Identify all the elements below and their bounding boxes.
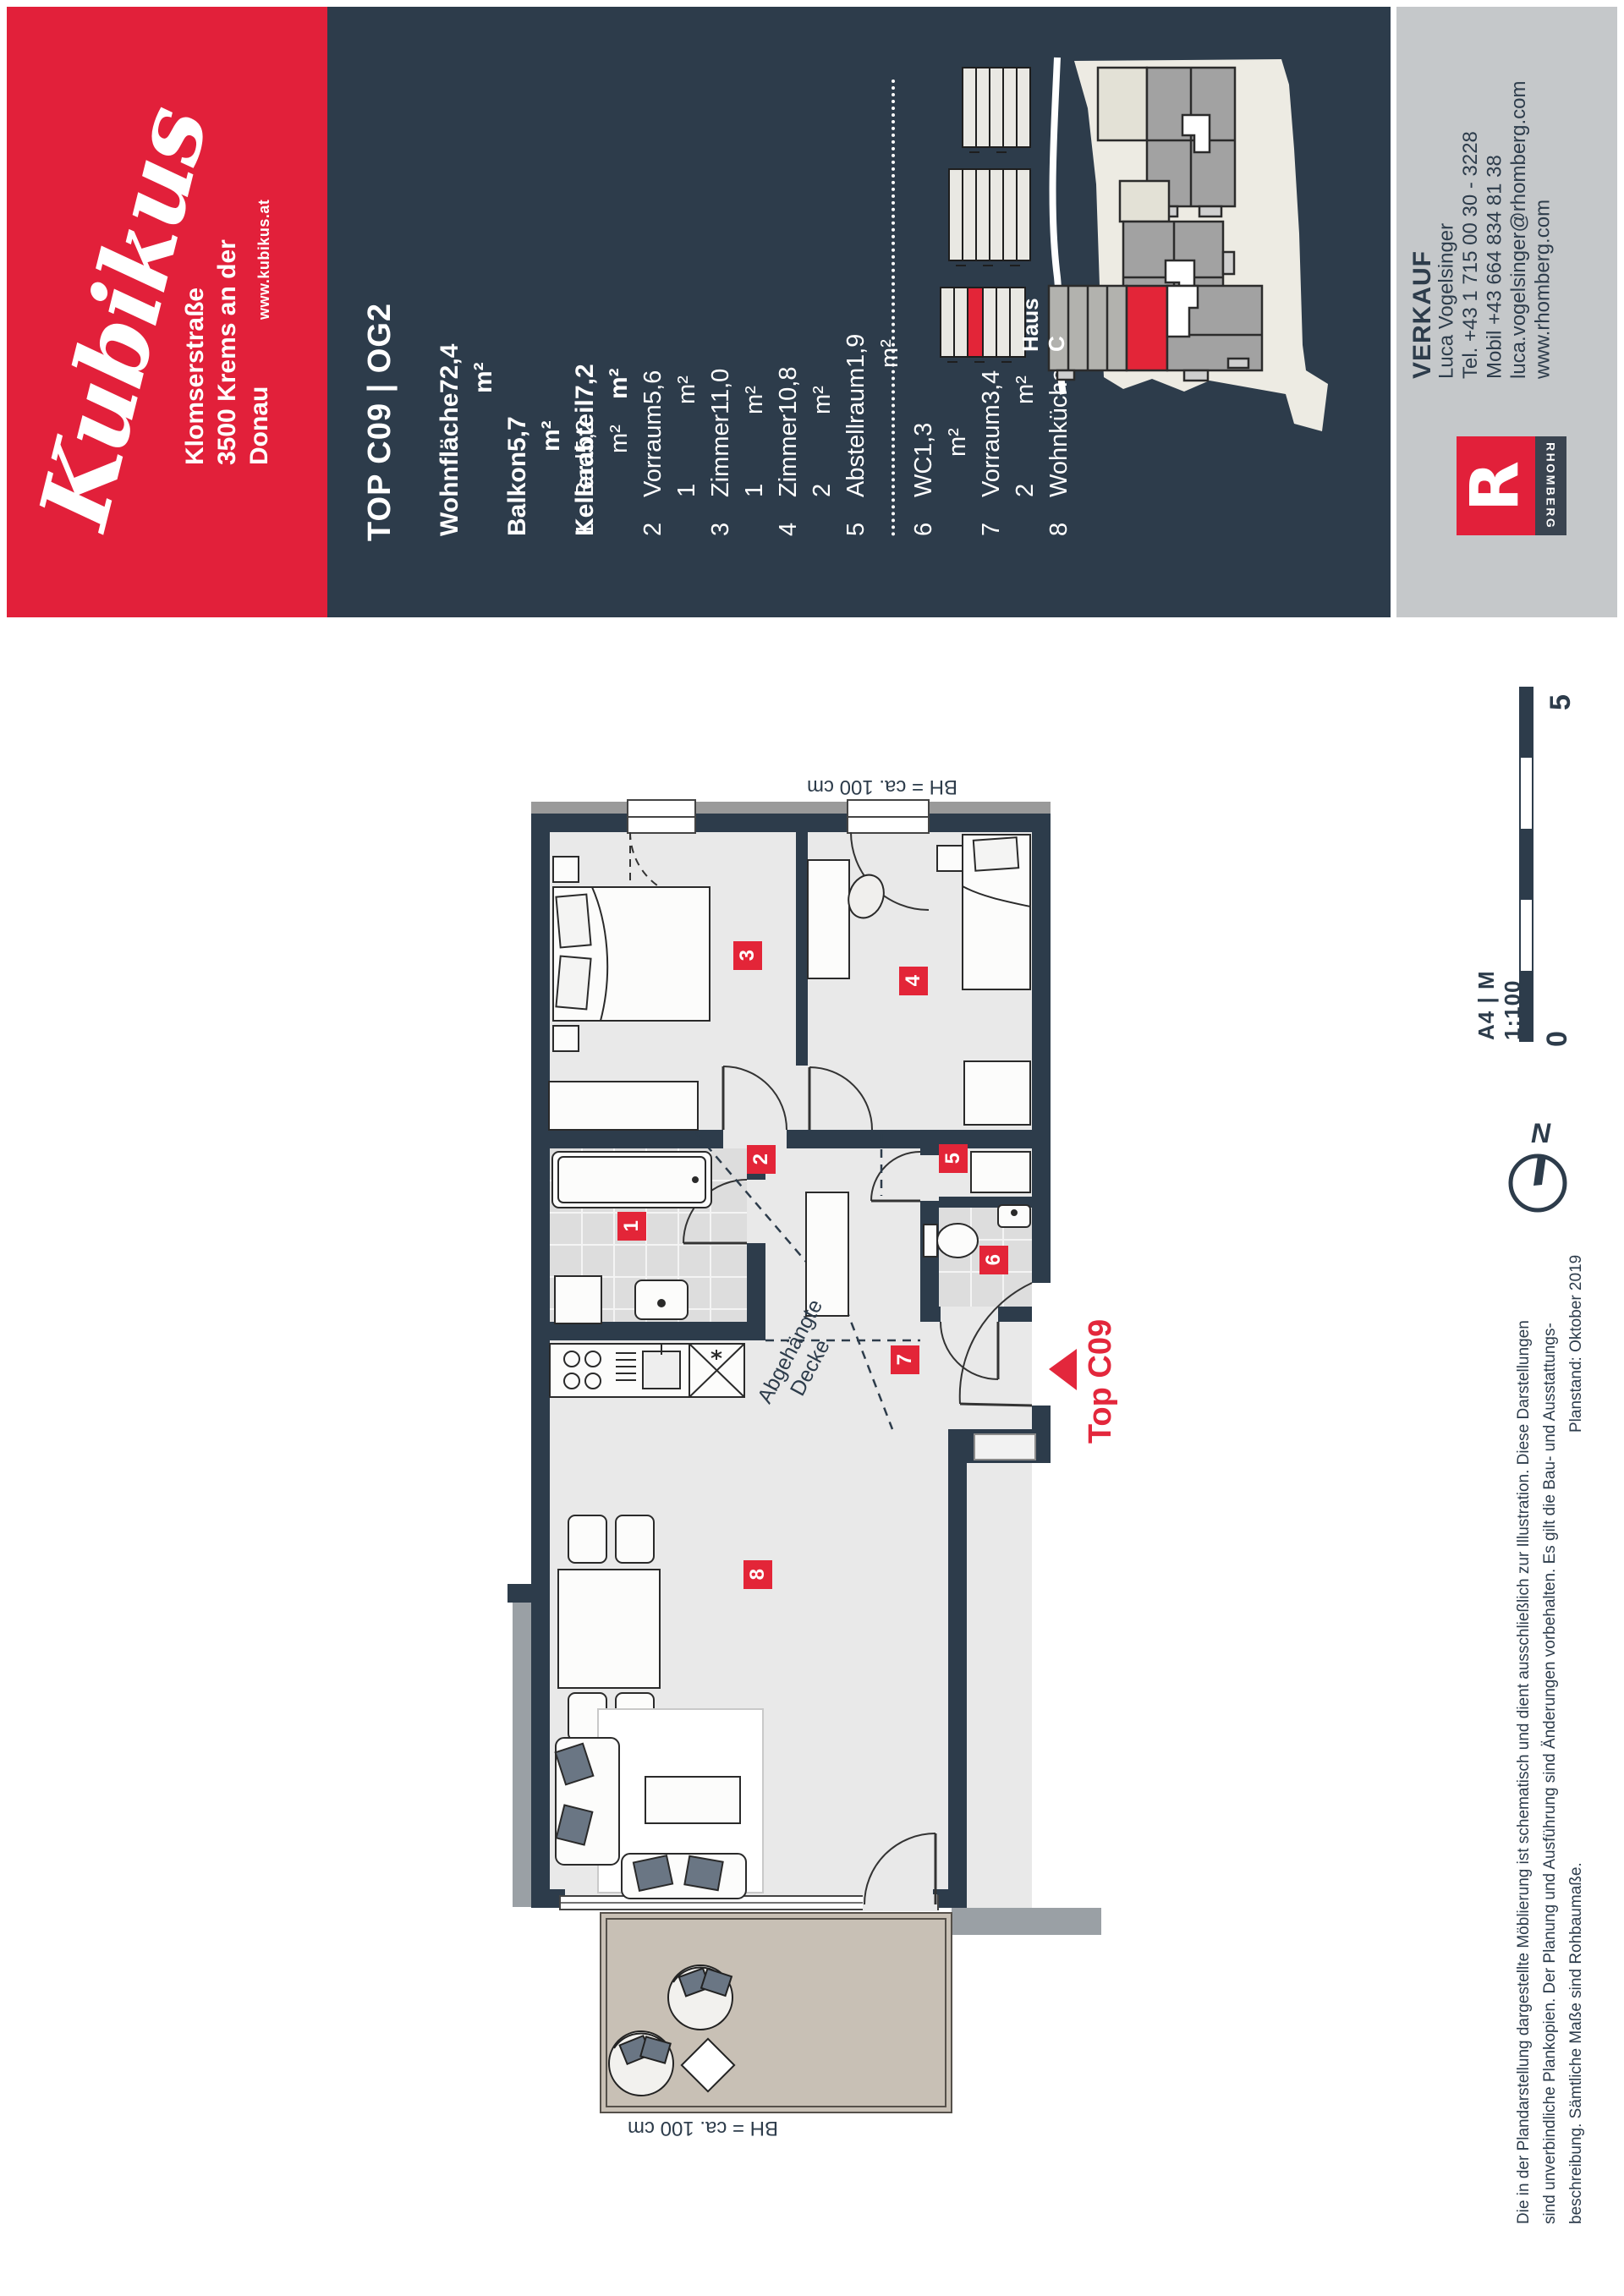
- parking-group: [949, 169, 1030, 266]
- north-label: N: [1531, 1118, 1550, 1149]
- rhomberg-logo-wordmark: RHOMBERG: [1535, 436, 1566, 535]
- stat-row: Balkon5,7 m²: [501, 502, 568, 536]
- room-row: 4Zimmer 210,8 m²: [771, 502, 839, 536]
- scale-start-label: 0: [1541, 1013, 1574, 1047]
- scale-end-label: 5: [1544, 677, 1577, 710]
- room-row: 2Vorraum 15,6 m²: [636, 502, 704, 536]
- rhomberg-logo-mark: R: [1457, 436, 1535, 535]
- entrance-label: Top C09: [1083, 1304, 1119, 1444]
- room-badge-1: 1: [617, 1212, 646, 1241]
- parking-group: [963, 68, 1030, 152]
- stat-row: Wohnfläche72,4 m²: [433, 502, 501, 536]
- parapet-note-bottom: BH = ca. 100 cm: [618, 2116, 787, 2140]
- contact-tel: Tel. +43 1 715 00 30 - 3228: [1459, 83, 1484, 379]
- unit-stats: Wohnfläche72,4 m² Balkon5,7 m² Kellerabt…: [433, 79, 535, 536]
- rhomberg-logo: R RHOMBERG: [1457, 436, 1566, 535]
- room-row: 3Zimmer 111,0 m²: [704, 502, 771, 536]
- dotted-separator: [892, 79, 895, 536]
- brand-street: Klomserstraße: [179, 186, 211, 465]
- north-arrow-graphic: [1507, 1151, 1570, 1214]
- building-cluster-haus-c: [1049, 286, 1262, 381]
- parking-group-haus-c: [941, 288, 1025, 362]
- contact-email: luca.vogelsinger@rhomberg.com: [1507, 83, 1532, 379]
- plan-sheet: Kubikus Klomserstraße 3500 Krems an der …: [0, 0, 1624, 2296]
- disclaimer-line-2: sind unverbindliche Plankopien. Der Plan…: [1537, 1255, 1563, 2224]
- entry-step: [974, 1434, 1035, 1460]
- brand-block: Kubikus Klomserstraße 3500 Krems an der …: [7, 7, 327, 617]
- contact-info: VERKAUF Luca Vogelsinger Tel. +43 1 715 …: [1411, 83, 1580, 379]
- site-plan: [930, 7, 1391, 617]
- contact-name: Luca Vogelsinger: [1435, 83, 1460, 379]
- room-badge-5: 5: [939, 1144, 968, 1173]
- floor-plan: [507, 778, 1116, 2165]
- room-badge-6: 6: [979, 1246, 1008, 1274]
- room-badge-2: 2: [747, 1145, 776, 1174]
- highlighted-unit: [1127, 286, 1167, 370]
- contact-heading: VERKAUF: [1411, 101, 1435, 379]
- footer-disclaimer: Die in der Plandarstellung dargestellte …: [1511, 1255, 1592, 2224]
- disclaimer-line-1: Die in der Plandarstellung dargestellte …: [1511, 1255, 1537, 2224]
- brand-website: www.kubikus.at: [255, 130, 273, 320]
- room-badge-4: 4: [899, 967, 928, 995]
- contact-mobile: Mobil +43 664 834 81 38: [1484, 83, 1508, 379]
- room-badge-8: 8: [743, 1560, 772, 1589]
- contact-web: www.rhomberg.com: [1532, 83, 1556, 379]
- room-badge-7: 7: [891, 1345, 919, 1374]
- disclaimer-line-3: beschreibung. Sämtliche Maße sind Rohbau…: [1563, 1255, 1589, 2224]
- parapet-note-top: BH = ca. 100 cm: [798, 775, 967, 798]
- site-building-label: Haus C: [1018, 284, 1070, 352]
- unit-info-block: TOP C09 | OG2 Wohnfläche72,4 m² Balkon5,…: [327, 7, 1391, 617]
- room-row: 1Bad5,2 m²: [568, 502, 636, 536]
- balcony: [601, 1913, 952, 2112]
- scale-text: A4 | M 1:100: [1473, 912, 1526, 1040]
- entrance-arrow: [1019, 1346, 1083, 1397]
- room-row: 5Abstellraum1,9 m²: [839, 502, 907, 536]
- contact-block: VERKAUF Luca Vogelsinger Tel. +43 1 715 …: [1396, 7, 1617, 617]
- unit-title: TOP C09 | OG2: [362, 283, 398, 541]
- room-badge-3: 3: [733, 941, 762, 970]
- plan-date: Planstand: Oktober 2019: [1563, 1255, 1589, 1433]
- room-list: 1Bad5,2 m² 2Vorraum 15,6 m² 3Zimmer 111,…: [568, 79, 841, 536]
